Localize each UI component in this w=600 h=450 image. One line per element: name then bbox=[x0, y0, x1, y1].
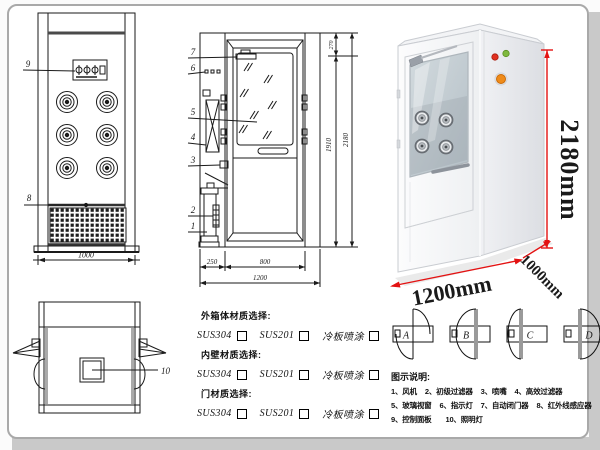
material-options-inner: SUS304 SUS201 冷板喷涂 bbox=[197, 367, 389, 382]
callout-lamp: 10 bbox=[161, 366, 171, 376]
legend-title: 图示说明: bbox=[391, 373, 589, 382]
material-option-label: SUS304 bbox=[197, 330, 232, 341]
dim-door-width-label: 800 bbox=[260, 258, 271, 266]
door-swing-options: A B C bbox=[391, 306, 600, 362]
callout-hepa: 4 bbox=[191, 132, 196, 142]
dim-top-label: 270 bbox=[329, 41, 335, 50]
hepa-filter-symbol bbox=[203, 90, 219, 152]
material-option-label: 冷板喷涂 bbox=[322, 367, 364, 382]
callout-glass: 5 bbox=[191, 107, 196, 117]
callout-prefilter: 2 bbox=[191, 205, 196, 215]
callout-leaders bbox=[23, 70, 88, 207]
material-option-label: SUS201 bbox=[260, 408, 295, 419]
legend-row-1: 1、风机 2、初级过滤器 3、喷嘴 4、高效过滤器 bbox=[391, 388, 589, 396]
door-option-label-a: A bbox=[402, 331, 410, 342]
checkbox-inner-sus201[interactable] bbox=[299, 370, 309, 380]
legend-item: 10、照明灯 bbox=[445, 416, 482, 424]
door-swing-left bbox=[13, 339, 45, 389]
door-option-label-d: D bbox=[584, 331, 593, 342]
materials-section: 外箱体材质选择: SUS304 SUS201 冷板喷涂 内壁材质选择: SUS3… bbox=[197, 312, 389, 429]
legend-item: 7、自动闭门器 bbox=[481, 402, 529, 410]
door-handle-slot bbox=[258, 148, 288, 154]
checkbox-outer-coldplate[interactable] bbox=[369, 331, 379, 341]
door-swing-option-c: C bbox=[505, 306, 549, 362]
side-view-drawing: 7 6 5 4 3 2 1 270 1910 2180 250 800 1200 bbox=[180, 25, 368, 299]
dim-total-width-label: 1200 bbox=[253, 274, 268, 282]
material-options-door: SUS304 SUS201 冷板喷涂 bbox=[197, 406, 389, 421]
emergency-button bbox=[497, 75, 506, 84]
material-group-title-door: 门材质选择: bbox=[201, 390, 389, 399]
page-shadow-right bbox=[589, 12, 600, 442]
legend-item: 3、喷嘴 bbox=[481, 388, 507, 396]
callout-nozzle: 3 bbox=[190, 155, 196, 165]
material-group-title-inner: 内壁材质选择: bbox=[201, 351, 389, 360]
callout-indicator: 6 bbox=[191, 63, 196, 73]
door-option-label-c: C bbox=[527, 331, 534, 342]
glass-hatching bbox=[239, 63, 277, 139]
top-view-drawing: 10 bbox=[8, 295, 180, 427]
checkbox-outer-sus201[interactable] bbox=[299, 331, 309, 341]
material-group-title-outer: 外箱体材质选择: bbox=[201, 312, 389, 321]
red-indicator-light bbox=[492, 54, 498, 60]
hinge-upper bbox=[397, 90, 400, 98]
material-option-label: SUS304 bbox=[197, 408, 232, 419]
checkbox-door-coldplate[interactable] bbox=[369, 409, 379, 419]
control-panel bbox=[73, 60, 107, 80]
legend-row-2: 5、玻璃视窗 6、指示灯 7、自动闭门器 8、红外线感应器 bbox=[391, 402, 589, 410]
door-with-glass bbox=[227, 40, 303, 241]
material-option-label: SUS201 bbox=[260, 369, 295, 380]
checkbox-inner-sus304[interactable] bbox=[237, 370, 247, 380]
legend-item: 1、风机 bbox=[391, 388, 417, 396]
checkbox-door-sus201[interactable] bbox=[299, 409, 309, 419]
door-swing-option-b: B bbox=[448, 306, 492, 362]
photo-dim-height-label: 2180mm bbox=[555, 119, 584, 220]
return-air-grille bbox=[48, 205, 126, 245]
dim-door-height-label: 1910 bbox=[325, 138, 333, 153]
photo-dim-depth-label: 1000mm bbox=[517, 252, 568, 303]
legend-item: 6、指示灯 bbox=[439, 402, 472, 410]
callout-control-panel: 9 bbox=[26, 59, 31, 69]
product-photo: 2180mm 1200mm 1000mm bbox=[385, 10, 590, 310]
dim-total-height-label: 2180 bbox=[342, 133, 350, 148]
legend-section: 图示说明: 1、风机 2、初级过滤器 3、喷嘴 4、高效过滤器 5、玻璃视窗 6… bbox=[391, 373, 589, 430]
legend-item: 9、控制面板 bbox=[391, 416, 431, 424]
indicator-lights-symbol bbox=[205, 70, 220, 73]
green-indicator-light bbox=[503, 50, 509, 56]
spec-sheet-page: 9 8 1000 bbox=[0, 0, 600, 450]
callout-sensor: 8 bbox=[27, 193, 32, 203]
air-nozzles bbox=[57, 92, 118, 179]
door-option-label-b: B bbox=[463, 331, 469, 342]
legend-row-3: 9、控制面板 10、照明灯 bbox=[391, 416, 589, 424]
hinge-lower bbox=[397, 140, 400, 148]
checkbox-inner-coldplate[interactable] bbox=[369, 370, 379, 380]
legend-item: 8、红外线感应器 bbox=[536, 402, 591, 410]
callout-door-closer: 7 bbox=[191, 47, 196, 57]
legend-item: 4、高效过滤器 bbox=[515, 388, 563, 396]
material-options-outer: SUS304 SUS201 冷板喷涂 bbox=[197, 328, 389, 343]
door-swing-right bbox=[134, 339, 166, 389]
front-width-dim-label: 1000 bbox=[78, 251, 94, 260]
legend-item: 5、玻璃视窗 bbox=[391, 402, 431, 410]
door-closer bbox=[236, 54, 256, 59]
ceiling-lamp-symbol bbox=[80, 358, 158, 382]
material-option-label: SUS201 bbox=[260, 330, 295, 341]
checkbox-outer-sus304[interactable] bbox=[237, 331, 247, 341]
dim-left-depth-label: 250 bbox=[207, 258, 218, 266]
door-swing-option-d: D bbox=[562, 306, 600, 362]
material-option-label: SUS304 bbox=[197, 369, 232, 380]
material-option-label: 冷板喷涂 bbox=[322, 328, 364, 343]
legend-item: 2、初级过滤器 bbox=[425, 388, 473, 396]
callout-fan: 1 bbox=[191, 221, 196, 231]
fan-unit-symbol bbox=[199, 183, 219, 247]
checkbox-door-sus304[interactable] bbox=[237, 409, 247, 419]
front-view-drawing: 9 8 1000 bbox=[20, 8, 180, 270]
cabinet-right-face bbox=[480, 30, 544, 256]
door-swing-option-a: A bbox=[391, 306, 435, 362]
material-option-label: 冷板喷涂 bbox=[322, 406, 364, 421]
